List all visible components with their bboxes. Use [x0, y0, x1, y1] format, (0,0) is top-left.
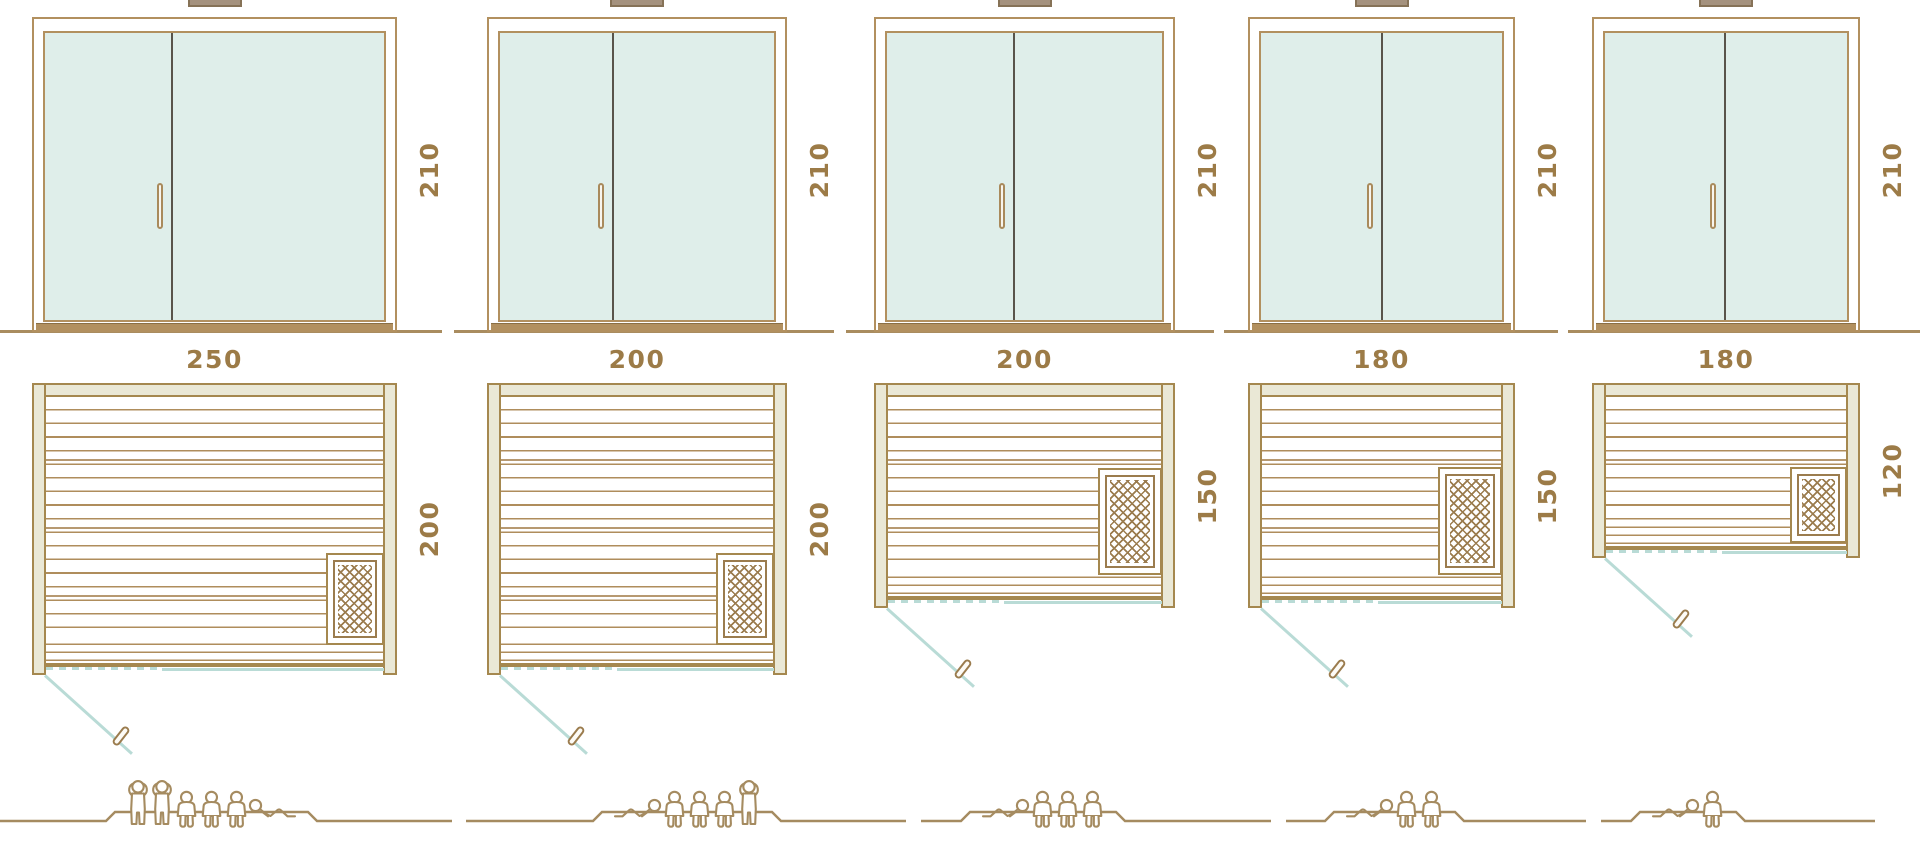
depth-dimension-label: 120: [1880, 431, 1906, 511]
heater-bench: [1438, 467, 1502, 575]
plan-right-wall: [1501, 383, 1515, 608]
heater: [1797, 474, 1840, 536]
ground-line: [846, 330, 1214, 333]
height-dimension-label: 210: [1195, 130, 1221, 210]
person-lying-icon: [615, 800, 660, 816]
glass-front-line: [617, 668, 774, 671]
height-dimension-label: 210: [1535, 130, 1561, 210]
glass-door-left-pane: [887, 33, 1013, 320]
plan-left-wall: [874, 383, 888, 608]
person-seated-icon: [203, 792, 221, 827]
sauna-unit: 210 180 150: [0, 0, 1920, 856]
heater-lattice: [1802, 479, 1835, 531]
plan-right-wall: [383, 383, 397, 675]
plan-door-handle-icon: [111, 725, 131, 747]
depth-value: 150: [1193, 467, 1222, 524]
glass-door-right-pane: [1383, 33, 1503, 320]
glass-door-left-pane: [1605, 33, 1724, 320]
depth-dimension-label: 150: [1535, 456, 1561, 536]
heater: [1105, 475, 1155, 568]
sauna-unit: 210 200 200: [0, 0, 1920, 856]
door-opening-dashed-line: [501, 667, 617, 670]
ground-line: [454, 330, 834, 333]
plan-left-wall: [1592, 383, 1606, 558]
width-value: 200: [996, 345, 1053, 374]
person-standing-icon: [129, 781, 147, 824]
glass-door-left-pane: [45, 33, 171, 320]
plan-back-wall: [1260, 383, 1503, 397]
plan-back-wall: [44, 383, 385, 397]
glass-double-door: [1259, 31, 1504, 322]
glass-double-door: [885, 31, 1164, 322]
sauna-unit: 210 180 120: [0, 0, 1920, 856]
plan-left-wall: [32, 383, 46, 675]
door-swing-line: [499, 674, 588, 755]
door-opening-dashed-line: [1606, 550, 1722, 553]
width-value: 180: [1698, 345, 1755, 374]
floor-plan: [487, 383, 787, 675]
front-elevation: [1592, 17, 1860, 332]
plan-left-wall: [1248, 383, 1262, 608]
glass-door-right-pane: [1015, 33, 1162, 320]
person-seated-icon: [1423, 792, 1441, 827]
person-seated-icon: [716, 792, 734, 827]
glass-front-line: [162, 668, 384, 671]
floor-boards: [46, 397, 383, 667]
person-lying-icon: [1347, 800, 1392, 816]
height-value: 210: [415, 142, 444, 199]
floor-boards: [1262, 397, 1501, 600]
plan-right-wall: [1846, 383, 1860, 558]
person-seated-icon: [1059, 792, 1077, 827]
heater: [723, 560, 767, 638]
plan-right-wall: [773, 383, 787, 675]
person-seated-icon: [1398, 792, 1416, 827]
height-value: 210: [805, 142, 834, 199]
depth-dimension-label: 200: [417, 489, 443, 569]
door-sill: [878, 323, 1171, 330]
plan-left-wall: [487, 383, 501, 675]
front-bench-boards: [888, 570, 1161, 600]
width-value: 250: [186, 345, 243, 374]
floor-boards: [888, 397, 1161, 600]
person-seated-icon: [1084, 792, 1102, 827]
height-dimension-label: 210: [807, 130, 833, 210]
door-handle-icon: [999, 183, 1005, 229]
height-value: 210: [1533, 142, 1562, 199]
ground-line: [1568, 330, 1920, 333]
floor-plan: [32, 383, 397, 675]
person-lying-icon: [250, 800, 295, 816]
glass-double-door: [43, 31, 386, 322]
front-bench-boards: [501, 637, 773, 667]
door-sill: [1596, 323, 1856, 330]
width-dimension-label: 250: [32, 347, 397, 373]
heater-lattice: [338, 565, 372, 633]
plan-door-handle-icon: [1671, 608, 1691, 630]
heater: [1445, 474, 1495, 568]
front-elevation: [1248, 17, 1515, 332]
floor-plan: [874, 383, 1175, 608]
person-seated-icon: [666, 792, 684, 827]
glass-double-door: [498, 31, 776, 322]
heater-bench: [326, 553, 384, 645]
capacity-strip: [0, 770, 1920, 834]
door-handle-icon: [1367, 183, 1373, 229]
person-standing-icon: [740, 781, 758, 824]
depth-dimension-label: 150: [1195, 456, 1221, 536]
door-swing-line: [1604, 557, 1693, 638]
front-bench-boards: [46, 637, 383, 667]
depth-value: 150: [1533, 467, 1562, 524]
glass-double-door: [1603, 31, 1849, 322]
door-swing-line: [1260, 607, 1349, 688]
height-dimension-label: 210: [1880, 130, 1906, 210]
floor-boards: [1606, 397, 1846, 550]
glass-door-right-pane: [614, 33, 774, 320]
person-seated-icon: [691, 792, 709, 827]
width-value: 180: [1353, 345, 1410, 374]
front-elevation: [32, 17, 397, 332]
glass-door-left-pane: [500, 33, 612, 320]
person-standing-icon: [153, 781, 171, 824]
heater-lattice: [1450, 479, 1490, 563]
glass-door-right-pane: [173, 33, 384, 320]
person-seated-icon: [228, 792, 246, 827]
ground-line: [1224, 330, 1558, 333]
roof-cap: [1699, 0, 1753, 7]
plan-door-handle-icon: [953, 658, 973, 680]
glass-front-line: [1378, 601, 1502, 604]
depth-value: 120: [1878, 442, 1907, 499]
heater-bench: [1098, 468, 1162, 575]
plan-back-wall: [499, 383, 775, 397]
heater-lattice: [728, 565, 762, 633]
plan-back-wall: [1604, 383, 1848, 397]
door-handle-icon: [598, 183, 604, 229]
sauna-unit: 210 250 200: [0, 0, 1920, 856]
roof-cap: [998, 0, 1052, 7]
floor-plan: [1248, 383, 1515, 608]
front-elevation: [487, 17, 787, 332]
capacity-platform-line: [466, 812, 906, 821]
plan-back-wall: [886, 383, 1163, 397]
floor-boards: [501, 397, 773, 667]
roof-cap: [1355, 0, 1409, 7]
person-lying-icon: [983, 800, 1028, 816]
glass-door-right-pane: [1726, 33, 1847, 320]
person-seated-icon: [1704, 792, 1722, 827]
glass-front-line: [1722, 551, 1847, 554]
capacity-platform-line: [1601, 812, 1875, 821]
height-value: 210: [1193, 142, 1222, 199]
sauna-unit: 210 200 150: [0, 0, 1920, 856]
sauna-size-comparison-diagram: 210 250 200: [0, 0, 1920, 856]
glass-front-line: [1004, 601, 1162, 604]
width-dimension-label: 200: [874, 347, 1175, 373]
plan-right-wall: [1161, 383, 1175, 608]
roof-cap: [610, 0, 664, 7]
width-dimension-label: 180: [1592, 347, 1860, 373]
heater-lattice: [1110, 480, 1150, 563]
width-dimension-label: 200: [487, 347, 787, 373]
depth-value: 200: [415, 501, 444, 558]
person-lying-icon: [1653, 800, 1698, 816]
person-seated-icon: [178, 792, 196, 827]
capacity-platform-line: [0, 812, 452, 821]
door-sill: [491, 323, 783, 330]
width-value: 200: [609, 345, 666, 374]
door-sill: [1252, 323, 1511, 330]
ground-line: [0, 330, 442, 333]
depth-dimension-label: 200: [807, 489, 833, 569]
heater: [333, 560, 377, 638]
glass-door-left-pane: [1261, 33, 1381, 320]
person-seated-icon: [1034, 792, 1052, 827]
width-dimension-label: 180: [1248, 347, 1515, 373]
door-swing-line: [886, 607, 975, 688]
door-sill: [36, 323, 393, 330]
floor-plan: [1592, 383, 1860, 558]
door-opening-dashed-line: [888, 600, 1004, 603]
door-handle-icon: [157, 183, 163, 229]
door-swing-line: [44, 674, 133, 755]
front-bench-boards: [1606, 520, 1846, 550]
plan-door-handle-icon: [1327, 658, 1347, 680]
height-dimension-label: 210: [417, 130, 443, 210]
heater-bench: [1790, 467, 1847, 543]
plan-door-handle-icon: [566, 725, 586, 747]
heater-bench: [716, 553, 774, 645]
door-opening-dashed-line: [1262, 600, 1378, 603]
front-bench-boards: [1262, 570, 1501, 600]
door-handle-icon: [1710, 183, 1716, 229]
front-elevation: [874, 17, 1175, 332]
roof-cap: [188, 0, 242, 7]
height-value: 210: [1878, 142, 1907, 199]
depth-value: 200: [805, 501, 834, 558]
door-opening-dashed-line: [46, 667, 162, 670]
